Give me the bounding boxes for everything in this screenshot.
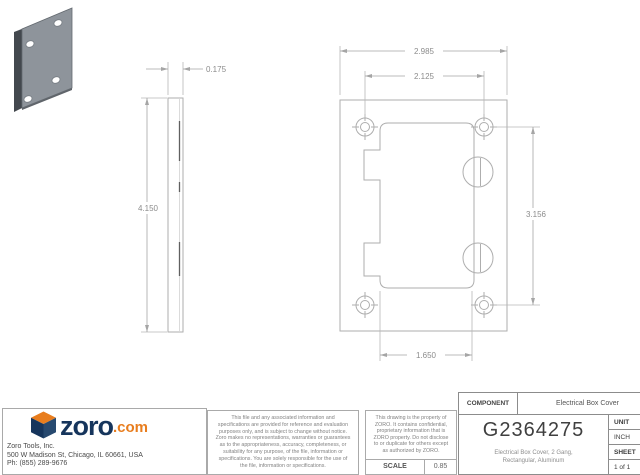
disclaimer-property: This drawing is the property of ZORO. It…	[366, 411, 456, 459]
component-body: G2364275 Electrical Box Cover, 2 Gang, R…	[459, 415, 640, 474]
component-label: COMPONENT	[459, 393, 518, 414]
unit-label: UNIT	[609, 415, 640, 430]
dim-overall-width-label: 2.985	[414, 47, 435, 56]
component-row: COMPONENT Electrical Box Cover	[459, 393, 640, 415]
unit-sheet-column: UNIT INCH SHEET 1 of 1	[609, 415, 640, 474]
component-value: Electrical Box Cover	[518, 393, 640, 414]
zoro-cube-icon	[31, 411, 56, 439]
disclaimer-property-box: This drawing is the property of ZORO. It…	[365, 410, 457, 475]
scale-label: SCALE	[366, 460, 425, 474]
company-street: 500 W Madison St, Chicago, IL 60661, USA	[7, 452, 143, 461]
sheet-value: 1 of 1	[609, 460, 640, 474]
component-block: COMPONENT Electrical Box Cover G2364275 …	[458, 392, 640, 475]
sheet-label: SHEET	[609, 445, 640, 460]
dim-hole-spacing-h-label: 2.125	[414, 72, 435, 81]
unit-value: INCH	[609, 430, 640, 445]
isometric-view	[14, 8, 72, 112]
front-view	[340, 100, 507, 331]
side-view-outline	[168, 98, 183, 332]
dim-thickness-label: 0.175	[206, 65, 227, 74]
side-view	[168, 98, 183, 332]
logo-suffix: .com	[113, 417, 148, 439]
plate-left-edge	[14, 29, 22, 112]
disclaimer-general: This file and any associated information…	[207, 410, 359, 475]
dim-hole-spacing-v-label: 3.156	[526, 210, 547, 219]
company-phone: Ph: (855) 289-9676	[7, 460, 143, 469]
zoro-logo: zoro.com	[31, 411, 148, 439]
logo-text: zoro	[60, 413, 113, 439]
part-number: G2364275	[483, 419, 584, 442]
scale-value: 0.85	[425, 460, 456, 474]
dim-overall-height-label: 4.150	[138, 204, 159, 213]
part-number-area: G2364275 Electrical Box Cover, 2 Gang, R…	[459, 415, 609, 474]
company-address: Zoro Tools, Inc. 500 W Madison St, Chica…	[7, 443, 143, 469]
company-name: Zoro Tools, Inc.	[7, 443, 143, 452]
dim-opening-to-screw-label: 1.650	[416, 351, 437, 360]
cad-drawing: 2.985 2.125 3.156 1.650 0.175 4.150	[0, 0, 640, 392]
company-info-box: zoro.com Zoro Tools, Inc. 500 W Madison …	[2, 408, 207, 475]
drawing-sheet: 2.985 2.125 3.156 1.650 0.175 4.150 zoro…	[0, 0, 640, 475]
scale-row: SCALE 0.85	[366, 459, 456, 474]
part-description: Electrical Box Cover, 2 Gang, Rectangula…	[478, 450, 590, 465]
